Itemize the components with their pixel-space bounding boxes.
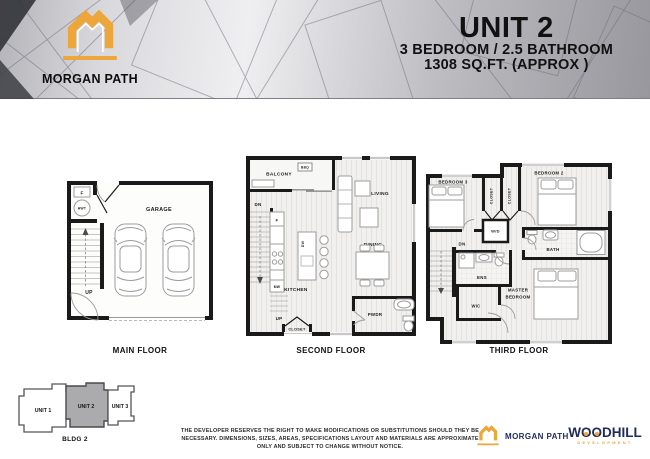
brochure-page: MORGAN PATH UNIT 2 3 BEDROOM / 2.5 BATHR… bbox=[0, 0, 650, 459]
pwdr-toilet bbox=[403, 316, 414, 321]
morgan-path-logo-icon bbox=[42, 9, 138, 65]
unit-2-label: UNIT 2 bbox=[78, 404, 95, 410]
mw-label: MW bbox=[274, 285, 281, 289]
bed-3 bbox=[429, 185, 464, 227]
ens-label: ENS bbox=[477, 275, 487, 280]
disclaimer-line1: THE DEVELOPER RESERVES THE RIGHT TO MAKE… bbox=[180, 428, 480, 436]
closet1-label: CLOSET bbox=[490, 187, 494, 204]
planter bbox=[252, 180, 274, 187]
bldg-label: BLDG 2 bbox=[14, 436, 136, 443]
unit-3-label: UNIT 3 bbox=[112, 404, 129, 410]
disclaimer-line2: NECESSARY. DIMENSIONS, SIZES, AREAS, SPE… bbox=[180, 436, 480, 444]
fridge-label: F bbox=[276, 218, 279, 223]
brand-name: MORGAN PATH bbox=[40, 72, 140, 86]
dw-label: DW bbox=[301, 240, 305, 247]
pwdr-label: PWDR bbox=[368, 312, 383, 317]
second-floor-plan: BALCONY BBQ DN UP F MW KITCHEN DW bbox=[246, 156, 416, 346]
wd-label: W/D bbox=[491, 229, 500, 234]
bed-2 bbox=[538, 178, 576, 225]
bath-label: BATH bbox=[546, 247, 559, 252]
furnace-label: F bbox=[80, 191, 83, 196]
woodhill-o-icon: O bbox=[592, 426, 603, 440]
car-1 bbox=[114, 224, 147, 296]
second-floor-caption: SECOND FLOOR bbox=[246, 346, 416, 355]
up-label: UP bbox=[85, 290, 93, 296]
up-label: UP bbox=[276, 316, 283, 321]
dn-label: DN bbox=[459, 242, 466, 247]
unit-info: UNIT 2 3 BEDROOM / 2.5 BATHROOM 1308 SQ.… bbox=[400, 14, 613, 73]
morgan-path-footer-logo: MORGAN PATH bbox=[476, 425, 569, 447]
morgan-path-footer-name: MORGAN PATH bbox=[505, 432, 569, 441]
woodhill-subtitle: DEVELOPMENT bbox=[563, 441, 647, 445]
brand-logo: MORGAN PATH bbox=[40, 9, 140, 86]
living-label: LIVING bbox=[371, 191, 389, 197]
garage-label: GARAGE bbox=[146, 207, 172, 213]
hwt-label: HWT bbox=[78, 207, 87, 211]
third-floor-caption: THIRD FLOOR bbox=[426, 346, 612, 355]
woodhill-name: WOODHILL bbox=[563, 426, 647, 440]
morgan-path-footer-icon bbox=[476, 425, 500, 447]
disclaimer-line3: ONLY AND SUBJECT TO CHANGE WITHOUT NOTIC… bbox=[180, 444, 480, 452]
kitchen-label: KITCHEN bbox=[284, 287, 308, 293]
unit-spec-line2: 1308 SQ.FT. (APPROX ) bbox=[400, 58, 613, 73]
main-floor-caption: MAIN FLOOR bbox=[62, 346, 218, 355]
closet-label: CLOSET bbox=[288, 328, 306, 332]
unit-title: UNIT 2 bbox=[400, 14, 613, 43]
bedroom3-label: BEDROOM 3 bbox=[438, 180, 468, 185]
master-label-1: MASTER bbox=[508, 288, 529, 293]
main-floor-plan: F HWT UP GARAGE bbox=[62, 177, 218, 325]
armchair bbox=[355, 181, 370, 196]
dn-label: DN bbox=[254, 202, 261, 207]
wic-label: WIC bbox=[471, 304, 480, 309]
third-floor-plan: BEDROOM 3 CLOSET CLOSET W/D BEDROOM 2 BA… bbox=[426, 163, 612, 344]
master-label-2: BEDROOM bbox=[505, 295, 530, 300]
building-diagram: UNIT 1 UNIT 2 UNIT 3 bbox=[14, 378, 136, 436]
bbq-label: BBQ bbox=[301, 166, 309, 170]
woodhill-o-icon: O bbox=[581, 426, 592, 440]
unit-1-label: UNIT 1 bbox=[35, 408, 52, 414]
woodhill-logo: WOODHILL DEVELOPMENT bbox=[563, 426, 647, 445]
bedroom2-label: BEDROOM 2 bbox=[534, 171, 564, 176]
header-banner: MORGAN PATH UNIT 2 3 BEDROOM / 2.5 BATHR… bbox=[0, 0, 650, 99]
master-bed bbox=[534, 269, 578, 319]
coffee-table bbox=[360, 208, 378, 227]
closet2-label: CLOSET bbox=[508, 187, 512, 204]
disclaimer: THE DEVELOPER RESERVES THE RIGHT TO MAKE… bbox=[180, 428, 480, 451]
unit-spec-line1: 3 BEDROOM / 2.5 BATHROOM bbox=[400, 43, 613, 58]
balcony-label: BALCONY bbox=[266, 172, 292, 178]
car-2 bbox=[162, 224, 195, 296]
